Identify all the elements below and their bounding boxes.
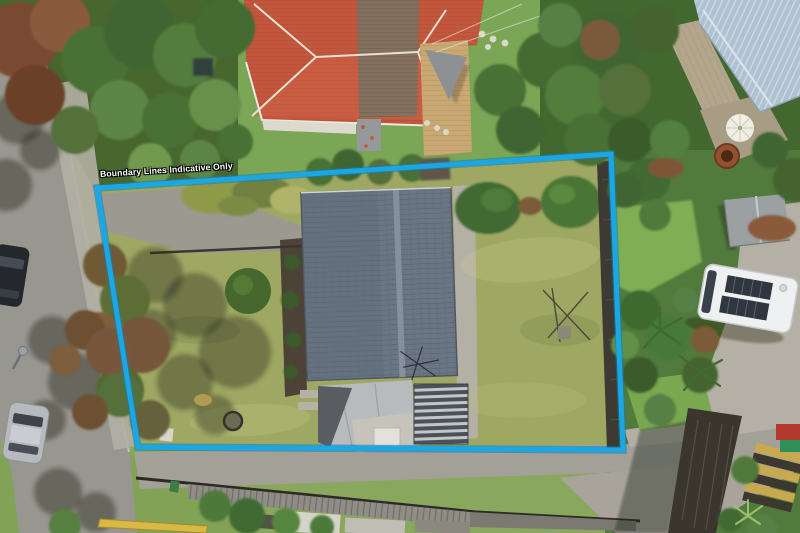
small-gray-shed (357, 119, 381, 151)
green-bin (169, 480, 179, 492)
pergola (414, 384, 468, 444)
spa-cover (374, 428, 400, 446)
sand-patch (194, 394, 212, 406)
manhole (224, 412, 242, 430)
aerial-scene (0, 0, 800, 533)
garden-pond (193, 58, 213, 76)
neighbor-deck (420, 40, 472, 156)
main-house-roof (301, 187, 458, 384)
green-box (780, 440, 800, 452)
parked-car-silver (2, 401, 51, 465)
red-box (776, 424, 800, 440)
aerial-property-photo: Boundary Lines Indicative Only (0, 0, 800, 533)
rear-extension (298, 380, 468, 452)
clothesline-base (558, 326, 571, 339)
